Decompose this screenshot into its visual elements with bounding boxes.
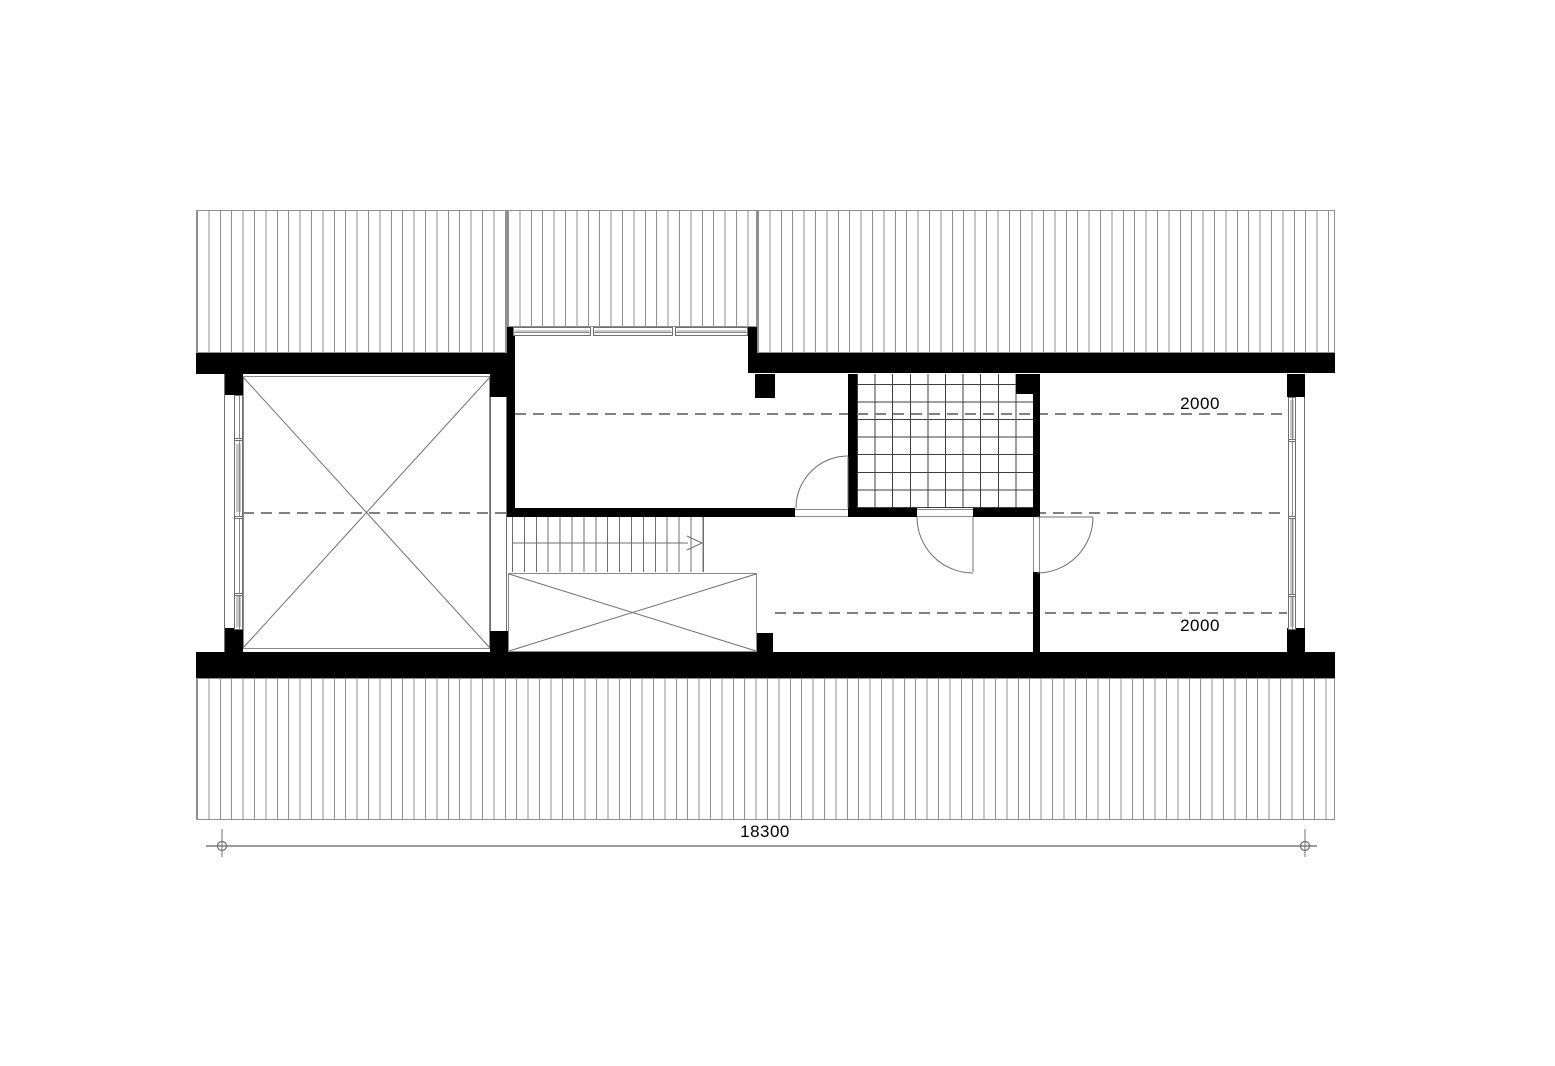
west-window-transom-2: [235, 516, 242, 519]
dormer-window-2: [593, 327, 673, 336]
exterior-wall-south: [196, 652, 1335, 678]
west-window: [234, 395, 243, 630]
bathroom-door-threshold: [917, 509, 973, 517]
bedroom-door-swing-arc: [796, 456, 848, 508]
void-partition-bottom-block: [490, 631, 508, 652]
east-wall-top-block: [1287, 374, 1305, 397]
roof-hatch-bottom: [196, 678, 1335, 820]
east-wall-bottom-block: [1287, 628, 1305, 652]
dormer-window-2-glass-line: [594, 332, 672, 333]
bedroom-south-wall: [507, 508, 795, 517]
roof-hatch-top-dormer: [507, 210, 757, 327]
bedroom2-west-wall-lower: [1033, 572, 1040, 652]
roof-hatch-top-left: [196, 210, 507, 353]
void-partition-top-block: [490, 374, 508, 397]
bathroom-tile-floor: [857, 374, 1033, 508]
stair-void-corner-stub: [757, 633, 773, 652]
bathroom-west-wall: [848, 374, 857, 517]
dormer-window-3-glass-line: [676, 332, 747, 333]
east-window-transom-2: [1289, 516, 1295, 519]
bathroom-south-wall-east: [973, 508, 1033, 517]
headroom-label-bottom: 2000: [1150, 617, 1250, 635]
dormer-window-1-glass-line: [514, 332, 590, 333]
bedroom-door-threshold: [795, 509, 848, 517]
dormer-window-1: [513, 327, 591, 336]
bathroom-south-wall-west: [857, 508, 917, 517]
east-window-transom-3: [1289, 594, 1295, 597]
stair-treads: [512, 517, 704, 572]
void-partition-line-west: [490, 395, 491, 633]
pier-north: [755, 374, 775, 398]
west-facade-line: [224, 374, 225, 652]
attic-floor-plan: 2000 2000 18300: [0, 0, 1555, 1066]
west-wall-top-block: [225, 374, 243, 395]
bathroom-east-wall: [1033, 374, 1040, 517]
headroom-dashed-line-bottom: [775, 612, 1287, 614]
bathroom-corner-notch: [1016, 374, 1033, 394]
dimension-marker-right: [1301, 842, 1310, 851]
stair-void: [508, 573, 757, 652]
east-window: [1288, 397, 1296, 630]
headroom-label-top: 2000: [1150, 395, 1250, 413]
west-wall-bottom-block: [225, 628, 243, 652]
overall-dimension-label: 18300: [710, 823, 820, 841]
dormer-window-3: [675, 327, 748, 336]
headroom-dashed-line-top: [515, 413, 1287, 415]
west-window-transom-1: [235, 438, 242, 441]
roof-hatch-top-right: [757, 210, 1335, 353]
bedroom2-door-threshold: [1033, 517, 1040, 572]
east-facade-line: [1304, 374, 1305, 652]
dormer-wall-left: [507, 327, 515, 517]
bathroom-door-swing-arc: [917, 517, 973, 573]
west-window-transom-3: [235, 593, 242, 596]
dormer-wall-right: [748, 327, 757, 373]
dimension-marker-left: [218, 842, 227, 851]
exterior-wall-north-left: [196, 353, 507, 374]
bedroom2-door-swing-arc: [1037, 517, 1093, 573]
exterior-wall-north-right: [748, 353, 1335, 373]
east-window-transom-1: [1289, 439, 1295, 442]
